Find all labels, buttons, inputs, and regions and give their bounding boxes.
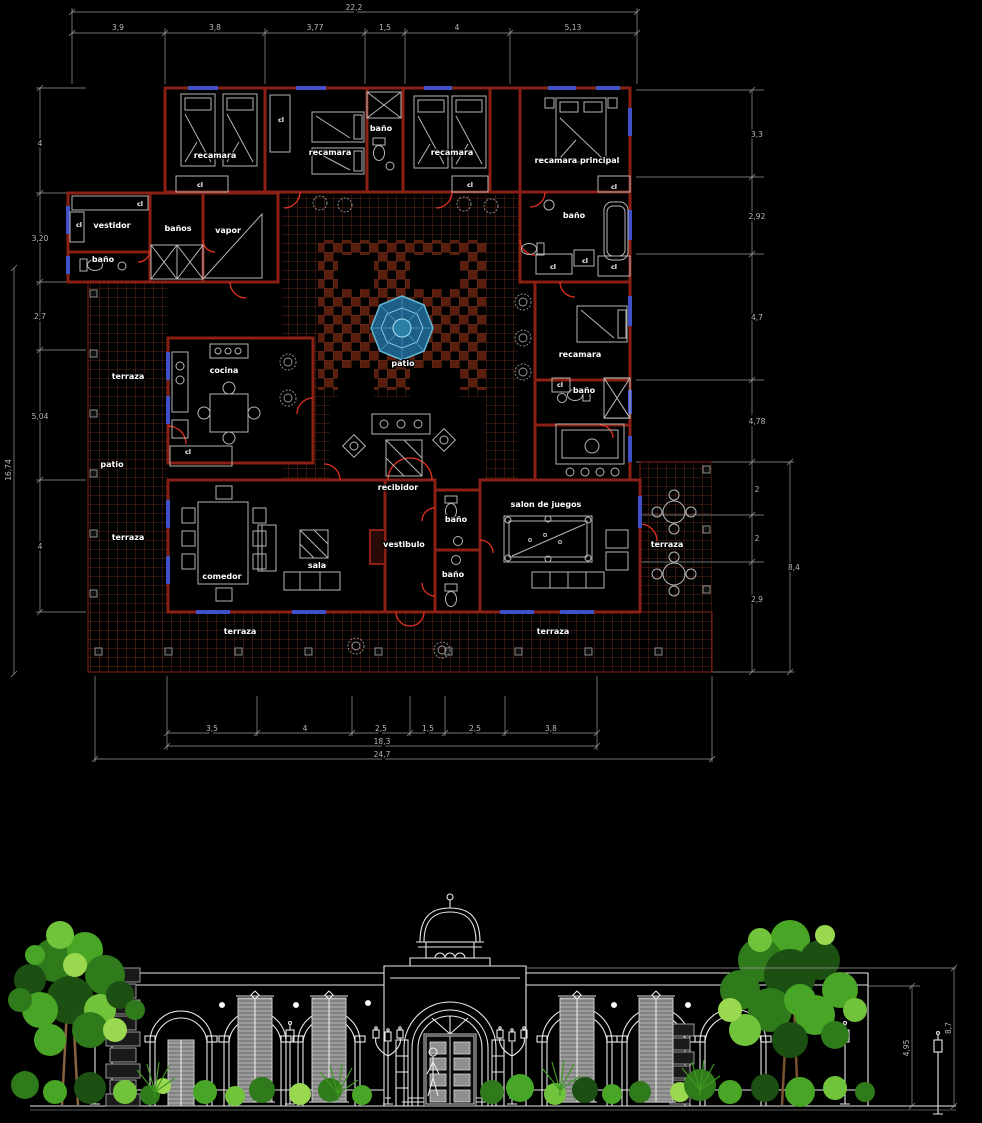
dim-right-2: 4,7	[751, 313, 763, 322]
room-label-terraza-2: terraza	[112, 533, 145, 542]
room-label-bano-guest: baño	[573, 386, 596, 395]
closet-label: cl	[197, 181, 203, 189]
cad-canvas: 22,2 3,9 3,8 3,77 1,5 4 5,13 4 3,20 2,7 …	[0, 0, 982, 1123]
closet-label: cl	[278, 116, 284, 124]
dim-bottom-5: 3,8	[545, 724, 557, 733]
dim-bottom-total: 24,7	[374, 750, 391, 759]
recibidor-floor	[330, 398, 485, 480]
dim-bottom-0: 3,5	[206, 724, 218, 733]
room-label-cocina: cocina	[210, 366, 239, 375]
room-label-recibidor: recibidor	[378, 483, 419, 492]
cad-drawing: 22,2 3,9 3,8 3,77 1,5 4 5,13 4 3,20 2,7 …	[0, 0, 982, 1123]
room-label-terraza-3: terraza	[224, 627, 257, 636]
room-label-terraza-4: terraza	[537, 627, 570, 636]
dim-left-0: 4	[38, 139, 43, 148]
elevation: 4,95 8,7	[8, 894, 957, 1114]
room-label-vapor: vapor	[215, 226, 241, 235]
dim-left-total: 16,74	[4, 459, 13, 481]
room-label-bano-principal: baño	[563, 211, 586, 220]
entrance-doors	[424, 1034, 476, 1106]
room-label-patio: patio	[391, 359, 415, 368]
dim-right-total: 8,4	[788, 563, 800, 572]
dim-top-2: 3,77	[307, 23, 324, 32]
room-label-sala: sala	[308, 561, 326, 570]
elevation-windows	[168, 991, 676, 1106]
room-label-terraza-5: terraza	[651, 540, 684, 549]
dim-left-1: 3,20	[32, 234, 49, 243]
room-label-recamara-4: recamara	[559, 350, 602, 359]
dim-right-5: 2	[755, 534, 760, 543]
street-lamp-icon	[933, 1032, 943, 1115]
dim-top-1: 3,8	[209, 23, 221, 32]
room-label-banos: baños	[164, 224, 191, 233]
closet-label: cl	[611, 263, 617, 271]
fountain-center	[393, 319, 411, 337]
room-label-salon-de-juegos: salon de juegos	[511, 500, 582, 509]
room-label-vestidor: vestidor	[93, 221, 130, 230]
dim-right-1: 2,92	[749, 212, 766, 221]
dim-top-0: 3,9	[112, 23, 124, 32]
room-label-bano-hall-2: baño	[442, 570, 465, 579]
closet-label: cl	[557, 381, 563, 389]
dim-elev-total: 8,7	[944, 1022, 953, 1034]
dim-right-4: 2	[755, 485, 760, 494]
dim-elev-inner: 4,95	[902, 1039, 911, 1056]
closet-label: cl	[137, 200, 143, 208]
room-label-recamara-2: recamara	[309, 148, 352, 157]
room-label-bano-hall-1: baño	[445, 515, 468, 524]
closet-label: cl	[582, 257, 588, 265]
closet-label: cl	[76, 221, 82, 229]
room-label-recamara-principal: recamara principal	[535, 156, 620, 165]
dim-top-3: 1,5	[379, 23, 391, 32]
room-label-terraza-1: terraza	[112, 372, 145, 381]
dim-bottom-subtotal: 18,3	[374, 737, 391, 746]
dim-right-0: 3,3	[751, 130, 763, 139]
dim-left-4: 4	[38, 542, 43, 551]
dim-bottom-2: 2,5	[375, 724, 387, 733]
closet-label: cl	[185, 448, 191, 456]
patio-fountain	[371, 296, 433, 360]
dim-top-total: 22,2	[346, 3, 363, 12]
dim-top-4: 4	[455, 23, 460, 32]
dim-left-2: 2,7	[34, 312, 46, 321]
dim-top-5: 5,13	[565, 23, 582, 32]
closet-label: cl	[550, 263, 556, 271]
candelabra-lamp-icon	[373, 1027, 403, 1104]
room-label-vestibulo: vestibulo	[383, 540, 425, 549]
dim-right-6: 2,9	[751, 595, 763, 604]
dim-right-3: 4,78	[749, 417, 766, 426]
room-label-recamara-3: recamara	[431, 148, 474, 157]
room-label-bano-top: baño	[370, 124, 393, 133]
room-label-bano-vestidor: baño	[92, 255, 115, 264]
closet-label: cl	[611, 183, 617, 191]
dim-bottom-4: 2,5	[469, 724, 481, 733]
closet-label: cl	[467, 181, 473, 189]
dim-left-3: 5,04	[32, 412, 49, 421]
room-label-patio-left: patio	[100, 460, 124, 469]
dim-bottom-3: 1,5	[422, 724, 434, 733]
room-label-recamara-1: recamara	[194, 151, 237, 160]
room-label-comedor: comedor	[202, 572, 241, 581]
dim-bottom-1: 4	[303, 724, 308, 733]
